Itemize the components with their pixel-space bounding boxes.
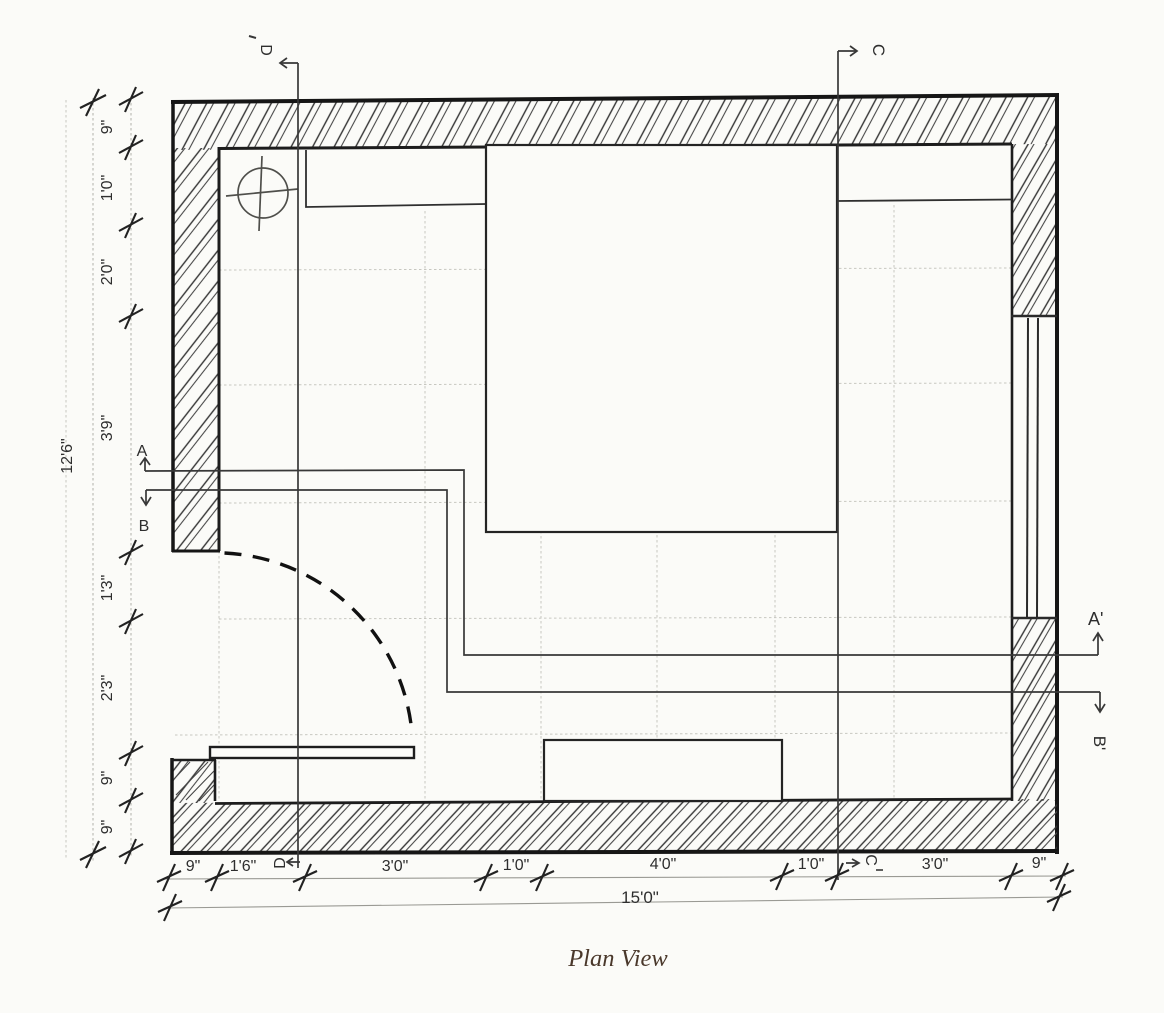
svg-text:1'3": 1'3" bbox=[99, 575, 116, 602]
svg-text:2'3": 2'3" bbox=[99, 675, 116, 702]
svg-text:3'9": 3'9" bbox=[99, 415, 116, 442]
svg-text:9": 9" bbox=[99, 771, 116, 786]
svg-text:4'0": 4'0" bbox=[650, 856, 677, 873]
svg-text:B: B bbox=[139, 518, 150, 535]
svg-text:A': A' bbox=[1088, 609, 1103, 629]
svg-text:15'0": 15'0" bbox=[621, 888, 659, 907]
svg-text:B': B' bbox=[1090, 736, 1109, 751]
svg-text:2'0": 2'0" bbox=[99, 259, 116, 286]
svg-text:C: C bbox=[869, 44, 888, 56]
svg-text:3'0": 3'0" bbox=[922, 856, 949, 873]
svg-text:A: A bbox=[137, 443, 148, 460]
svg-text:1'0": 1'0" bbox=[798, 856, 825, 873]
svg-text:D: D bbox=[272, 857, 289, 869]
svg-text:D: D bbox=[257, 44, 274, 56]
svg-text:9": 9" bbox=[1032, 855, 1047, 872]
svg-text:Plan View: Plan View bbox=[567, 945, 668, 972]
svg-text:1'0": 1'0" bbox=[99, 175, 116, 202]
svg-text:9": 9" bbox=[99, 820, 116, 835]
svg-text:1'0": 1'0" bbox=[503, 857, 530, 874]
svg-text:3'0": 3'0" bbox=[382, 858, 409, 875]
svg-text:12'6": 12'6" bbox=[59, 438, 76, 473]
svg-text:9": 9" bbox=[99, 120, 116, 135]
svg-text:1'6": 1'6" bbox=[230, 858, 257, 875]
svg-text:9": 9" bbox=[186, 858, 201, 875]
svg-text:C: C bbox=[862, 854, 879, 866]
